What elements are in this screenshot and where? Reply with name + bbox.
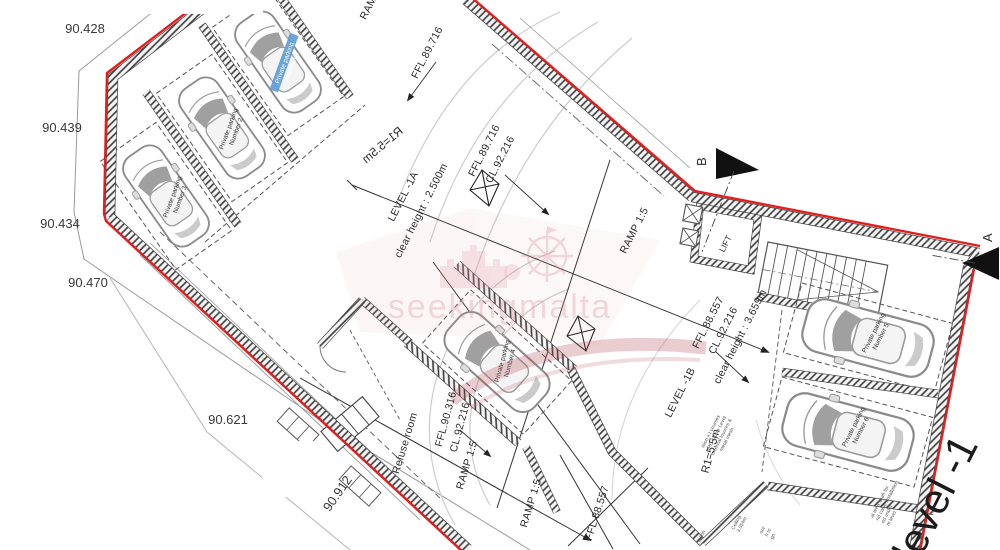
lift-room: LIFT (694, 206, 758, 270)
ramp-label-3: RAMP 1:5 (518, 477, 544, 528)
spot-level: 90.434 (40, 216, 80, 231)
ffl-low-label: FFL.88.557 (583, 484, 612, 542)
spot-level: 90.470 (68, 275, 108, 290)
svg-text:gn: gn (769, 532, 777, 540)
spot-level: 90.428 (65, 21, 105, 36)
section-b-label: B (694, 157, 709, 166)
level-1b-label: LEVEL -1B (663, 366, 698, 420)
plan-canvas: Private parking Number 1 Private parking… (0, 0, 1000, 550)
spot-level: 90.912 (320, 473, 355, 514)
door-swing-arc (320, 346, 346, 372)
floor-plan-page: { "drawing": { "watermark_text": "seekin… (0, 0, 1000, 550)
ramp-radius-label-mirrored: R1=5.5m (359, 124, 406, 166)
watermark-text: seekingmalta (388, 288, 612, 326)
parking-block-a: Private parking Number 1 Private parking… (100, 0, 350, 270)
spot-level: 90.439 (42, 120, 82, 135)
spot-level: 90.621 (208, 412, 248, 427)
car-6: Private parking Number 6 (777, 384, 919, 480)
section-a-label: A (980, 233, 995, 242)
